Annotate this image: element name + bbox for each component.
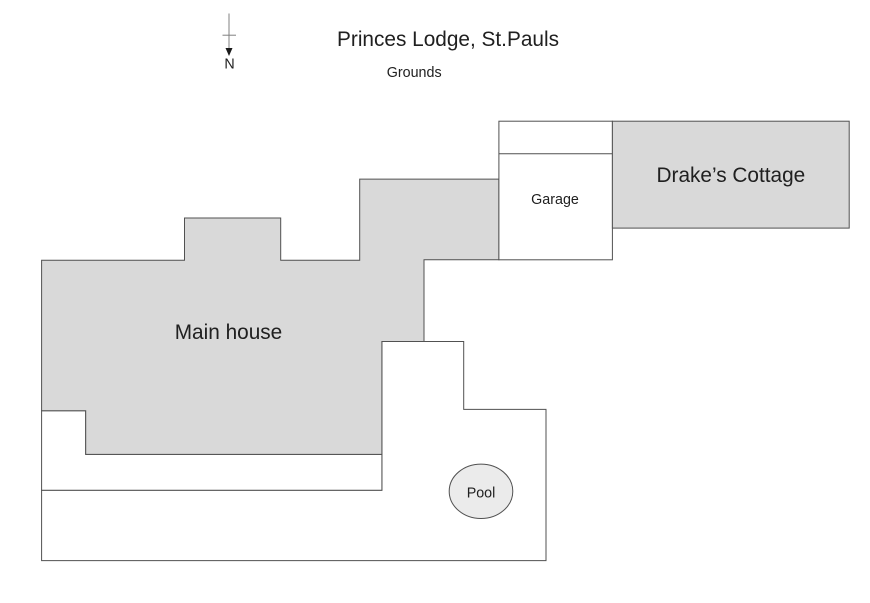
svg-text:Princes Lodge, St.Pauls: Princes Lodge, St.Pauls: [337, 28, 559, 51]
svg-text:Pool: Pool: [467, 485, 496, 501]
svg-text:N: N: [224, 57, 234, 73]
svg-text:Garage: Garage: [531, 192, 579, 208]
svg-text:Main house: Main house: [175, 321, 283, 344]
svg-text:Grounds: Grounds: [387, 65, 442, 81]
svg-text:Drake’s Cottage: Drake’s Cottage: [657, 164, 806, 187]
